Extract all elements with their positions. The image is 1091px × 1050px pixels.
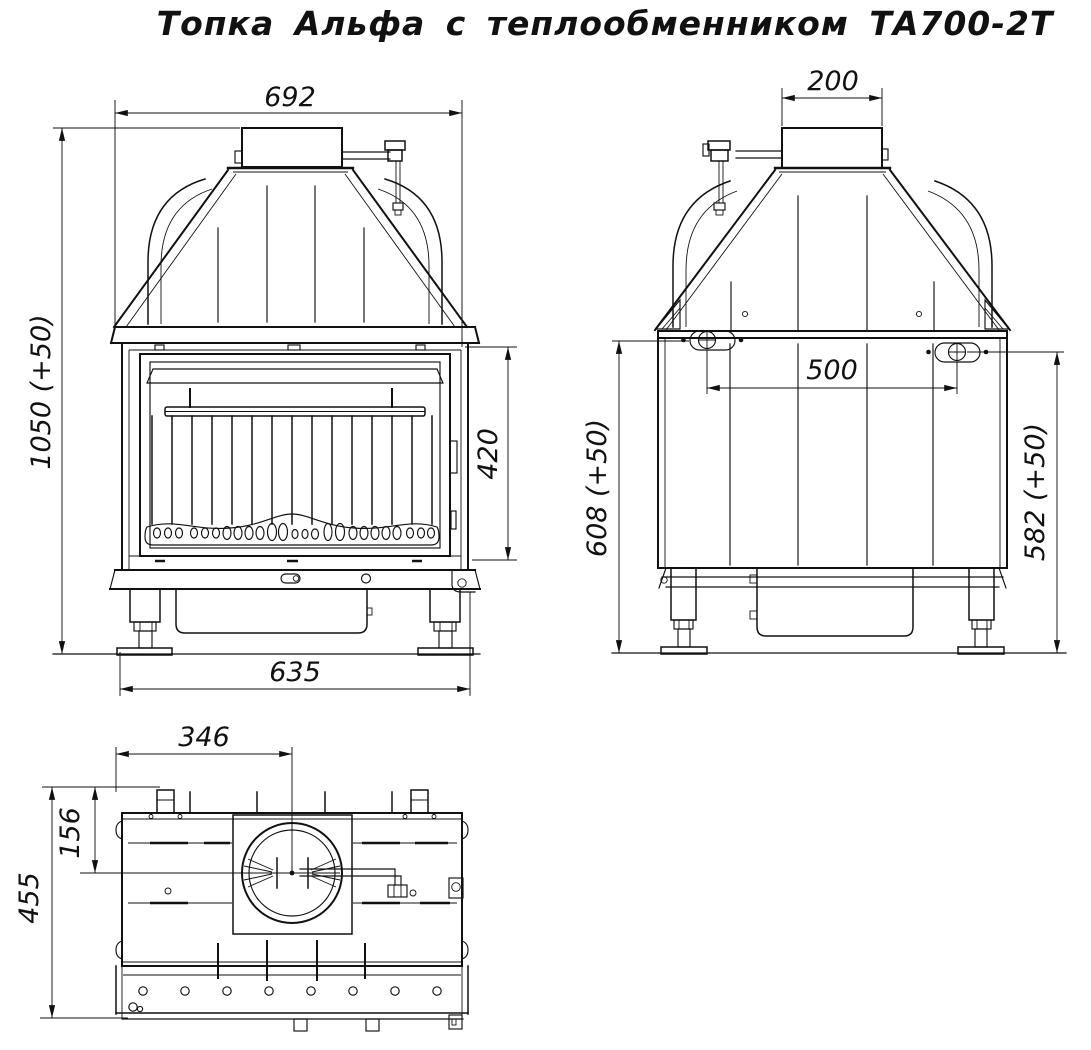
water-connector-right (926, 343, 988, 362)
dim-label-420: 420 (473, 428, 504, 480)
rear-view: 200 500 608 (+50) 582 (+50) (582, 66, 1066, 654)
water-connector-left (681, 331, 743, 350)
dim-door-height: 420 (465, 347, 517, 560)
dim-label-156: 156 (55, 807, 86, 859)
dim-label-346: 346 (178, 722, 230, 753)
top-view: 346 156 455 (14, 722, 468, 1031)
dim-overall-width: 692 (115, 82, 462, 347)
front-strip-holes (139, 987, 441, 995)
dim-height-right: 582 (+50) (967, 352, 1064, 653)
dim-label-500: 500 (806, 355, 858, 386)
dim-label-608: 608 (+50) (582, 419, 613, 557)
dim-label-200: 200 (807, 66, 859, 97)
front-view: 692 1050 (+50) 420 635 (26, 82, 517, 696)
drawing-canvas: 692 1050 (+50) 420 635 (0, 0, 1091, 1050)
dim-label-582: 582 (+50) (1020, 423, 1051, 561)
dim-label-455: 455 (14, 872, 45, 924)
drawing-sheet: Топка Альфа с теплообменником ТА700-2Т (0, 0, 1091, 1050)
dim-flue-width: 200 (782, 66, 882, 126)
dim-flue-from-left: 346 (116, 722, 292, 871)
dim-base-width: 635 (120, 592, 470, 696)
dim-overall-height: 1050 (+50) (26, 128, 240, 654)
door-latch (450, 441, 457, 473)
dim-label-1050: 1050 (+50) (26, 314, 57, 469)
dim-connector-spacing: 500 (707, 350, 957, 394)
legs-front (117, 589, 473, 655)
ash-drawer-front (176, 589, 367, 633)
legs-rear (661, 568, 1004, 654)
dim-label-692: 692 (264, 82, 316, 113)
dim-flue-from-back: 156 (42, 787, 160, 873)
ash-drawer-rear (757, 568, 913, 636)
dim-label-635: 635 (269, 657, 321, 688)
dim-height-left: 608 (+50) (582, 341, 689, 653)
